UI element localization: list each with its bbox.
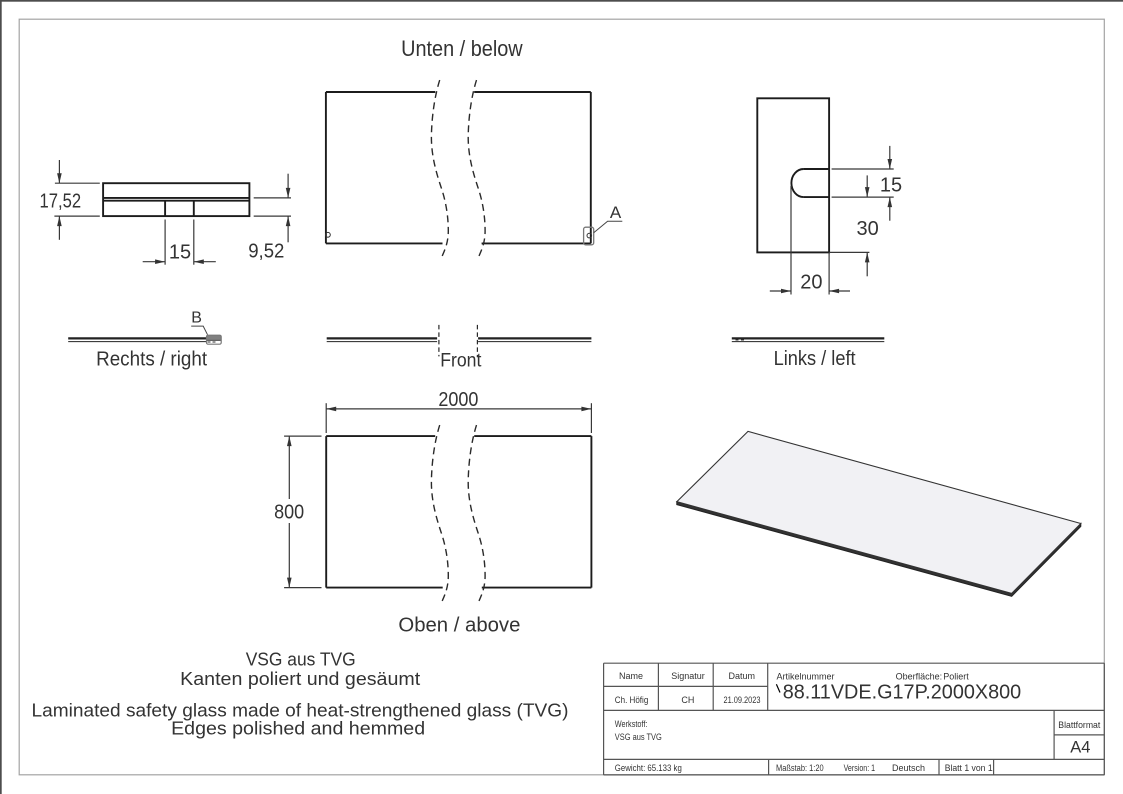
svg-text:B: B [191, 309, 202, 326]
svg-text:Maßstab: 1:20: Maßstab: 1:20 [776, 763, 824, 773]
svg-text:15: 15 [880, 175, 902, 197]
svg-text:Ch. Höfig: Ch. Höfig [615, 695, 649, 705]
svg-text:Oberfläche:: Oberfläche: [896, 672, 943, 682]
svg-text:Edges polished and hemmed: Edges polished and hemmed [171, 719, 425, 739]
svg-text:Werkstoff:: Werkstoff: [615, 719, 648, 729]
svg-text:Links / left: Links / left [774, 348, 856, 370]
svg-text:9,52: 9,52 [248, 241, 284, 263]
svg-text:Kanten poliert und gesäumt: Kanten poliert und gesäumt [180, 669, 420, 689]
svg-text:Poliert: Poliert [943, 672, 969, 682]
svg-text:Datum: Datum [729, 671, 756, 681]
svg-text:VSG aus TVG: VSG aus TVG [615, 732, 662, 742]
svg-text:Unten / below: Unten / below [401, 36, 523, 61]
svg-text:Rechts / right: Rechts / right [96, 348, 207, 370]
svg-text:Version: 1: Version: 1 [844, 763, 876, 773]
svg-text:20: 20 [800, 272, 822, 294]
svg-text:17,52: 17,52 [40, 191, 82, 213]
svg-text:Blatt 1 von 1: Blatt 1 von 1 [945, 763, 993, 773]
svg-text:VSG aus TVG: VSG aus TVG [246, 650, 356, 670]
svg-text:CH: CH [681, 695, 694, 705]
svg-text:Oben / above: Oben / above [398, 614, 520, 636]
svg-text:Deutsch: Deutsch [892, 763, 925, 773]
svg-text:Signatur: Signatur [671, 671, 705, 681]
svg-text:Front: Front [440, 351, 482, 372]
svg-text:2000: 2000 [438, 389, 478, 411]
svg-text:A4: A4 [1070, 739, 1090, 757]
svg-text:Gewicht: 65.133 kg: Gewicht: 65.133 kg [615, 763, 682, 773]
svg-text:Artikelnummer: Artikelnummer [777, 672, 835, 682]
svg-text:Laminated safety glass made of: Laminated safety glass made of heat-stre… [32, 701, 569, 721]
svg-text:88.11VDE.G17P.2000X800: 88.11VDE.G17P.2000X800 [783, 682, 1022, 704]
svg-text:30: 30 [856, 218, 878, 240]
svg-text:15: 15 [169, 242, 191, 264]
svg-text:800: 800 [274, 502, 304, 524]
svg-text:Blattformat: Blattformat [1058, 720, 1100, 730]
svg-text:Name: Name [619, 671, 643, 681]
svg-text:A: A [610, 203, 622, 222]
svg-text:21.09.2023: 21.09.2023 [724, 695, 761, 705]
